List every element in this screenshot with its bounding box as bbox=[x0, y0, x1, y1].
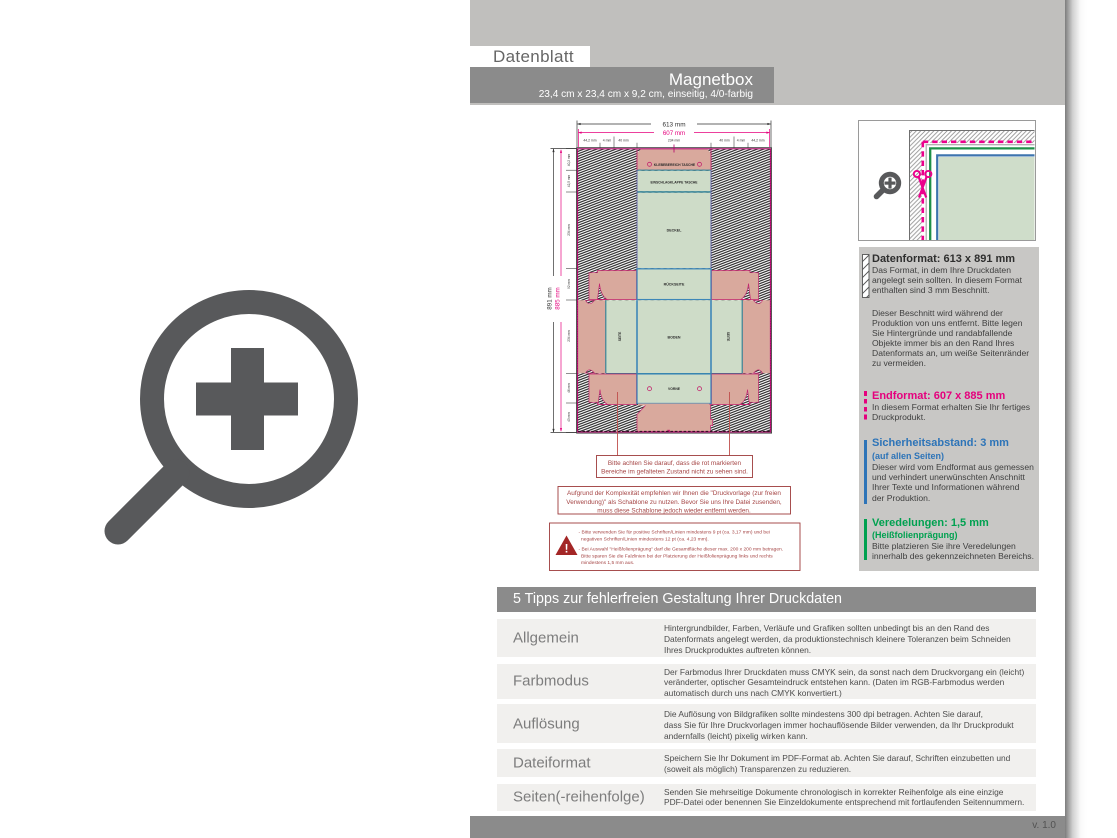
svg-text:234 mm: 234 mm bbox=[567, 330, 571, 342]
svg-text:DECKEL: DECKEL bbox=[667, 229, 683, 233]
svg-text:BODEN: BODEN bbox=[668, 336, 681, 340]
svg-text:Verwendung)" als Schablone zu: Verwendung)" als Schablone zu nutzen. Be… bbox=[566, 499, 782, 506]
svg-text:muss diese Schablone jedoch wi: muss diese Schablone jedoch wieder entfe… bbox=[597, 507, 751, 514]
svg-text:SEITE: SEITE bbox=[618, 331, 622, 341]
svg-text:EINSCHLAGKLAPPE TASCHE: EINSCHLAGKLAPPE TASCHE bbox=[650, 181, 698, 185]
svg-text:Bitte sparen Sie die Falzlinie: Bitte sparen Sie die Falzlinien bei der … bbox=[581, 553, 773, 559]
svg-text:Bereiche im gefalteten Zustand: Bereiche im gefalteten Zustand nicht zu … bbox=[601, 469, 748, 476]
svg-text:40,2 mm: 40,2 mm bbox=[567, 153, 571, 166]
svg-text:234 mm: 234 mm bbox=[668, 138, 680, 142]
svg-text:Bitte achten Sie darauf, dass: Bitte achten Sie darauf, dass die rot ma… bbox=[608, 460, 742, 467]
svg-text:891 mm: 891 mm bbox=[547, 287, 554, 309]
svg-text:42,5 mm: 42,5 mm bbox=[567, 174, 571, 187]
svg-text:Aufgrund der Komplexität empfe: Aufgrund der Komplexität empfehlen wir I… bbox=[567, 490, 781, 497]
svg-text:40 mm: 40 mm bbox=[719, 138, 730, 142]
svg-text:234 mm: 234 mm bbox=[567, 224, 571, 236]
svg-text:RÜCKSEITE: RÜCKSEITE bbox=[664, 282, 685, 287]
svg-text:KLEBEBEREICH TASCHE: KLEBEBEREICH TASCHE bbox=[654, 163, 696, 167]
svg-text:SEITE: SEITE bbox=[726, 332, 730, 342]
svg-text:44,2 mm: 44,2 mm bbox=[583, 138, 596, 142]
svg-text:607 mm: 607 mm bbox=[663, 130, 685, 137]
svg-text:613 mm: 613 mm bbox=[662, 121, 685, 128]
svg-text:885 mm: 885 mm bbox=[555, 287, 562, 309]
svg-text:40 mm: 40 mm bbox=[618, 138, 629, 142]
svg-text:VORNE: VORNE bbox=[668, 387, 681, 391]
svg-text:4 mm: 4 mm bbox=[737, 138, 746, 142]
svg-text:- Bitte verwenden Sie für posi: - Bitte verwenden Sie für positive Schri… bbox=[579, 530, 770, 536]
svg-text:4 mm: 4 mm bbox=[603, 138, 612, 142]
svg-text:46 mm: 46 mm bbox=[567, 383, 571, 393]
svg-text:92 mm: 92 mm bbox=[567, 279, 571, 289]
svg-text:mindestens 1,5 mm aus.: mindestens 1,5 mm aus. bbox=[581, 560, 634, 566]
svg-text:!: ! bbox=[565, 544, 569, 556]
svg-text:negativen Schriften/Linien min: negativen Schriften/Linien mindestens 12… bbox=[581, 536, 709, 542]
svg-text:43 mm: 43 mm bbox=[567, 412, 571, 422]
svg-text:44,2 mm: 44,2 mm bbox=[751, 138, 764, 142]
svg-text:- Bei Auswahl "Heißfolienprägu: - Bei Auswahl "Heißfolienprägung" darf d… bbox=[579, 547, 784, 553]
